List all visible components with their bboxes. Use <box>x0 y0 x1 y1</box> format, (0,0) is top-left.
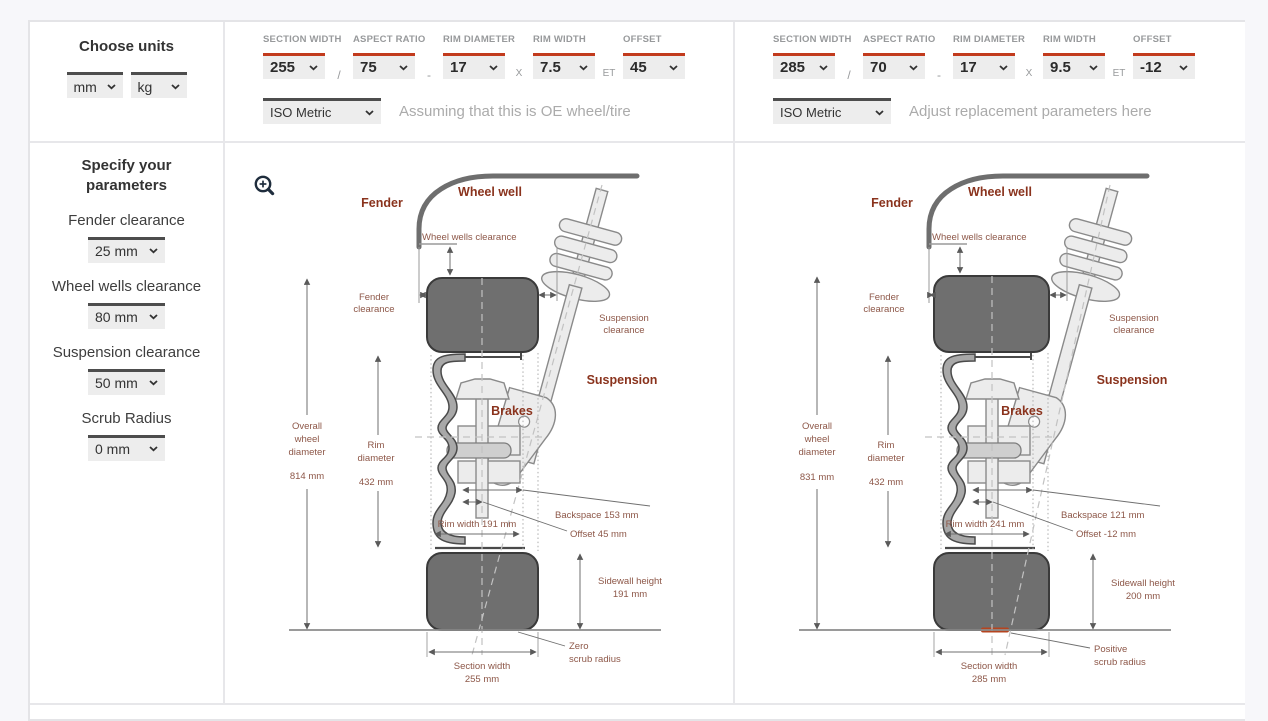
field-label: ASPECT RATIO <box>353 34 415 45</box>
scrub-radius-leader <box>518 632 565 646</box>
rim-top-bead <box>975 352 1031 360</box>
scrub-radius-text: scrub radius <box>569 654 621 665</box>
brake-caliper-lower <box>458 461 520 483</box>
scrub-radius-leader <box>1011 633 1090 648</box>
section-width-text: Section width <box>961 661 1018 672</box>
select-scrub-radius[interactable]: 0 mm <box>88 435 165 461</box>
offset-text: Offset -12 mm <box>1076 529 1136 540</box>
select-weight-unit[interactable]: kg <box>131 72 187 98</box>
sidewall-height-text: Sidewall height <box>598 576 662 587</box>
parameters-heading-line1: Specify your <box>30 156 223 176</box>
standard-value: ISO Metric <box>270 105 331 120</box>
select-rim-width-new[interactable]: 9.5 <box>1043 53 1105 79</box>
rim-diameter-text: Rim <box>368 440 385 451</box>
field-label: SECTION WIDTH <box>263 34 325 45</box>
chevron-down-icon <box>309 65 318 71</box>
field-separator: X <box>505 34 533 82</box>
param-value: 50 mm <box>95 375 138 391</box>
wheel-wells-clearance-text: Wheel wells clearance <box>422 232 517 243</box>
field-label: RIM WIDTH <box>533 34 595 45</box>
field-value: 17 <box>960 59 977 76</box>
param-value: 25 mm <box>95 243 138 259</box>
weight-unit-value: kg <box>138 79 153 95</box>
footer-row <box>30 705 1245 719</box>
select-rim-diameter-new[interactable]: 17 <box>953 53 1015 79</box>
field-label: RIM DIAMETER <box>953 34 1015 45</box>
rim-diameter-text: diameter <box>868 453 905 464</box>
suspension-label: Suspension <box>587 373 658 387</box>
field-separator: / <box>325 34 353 82</box>
field-value: 45 <box>630 59 647 76</box>
offset-text: Offset 45 mm <box>570 529 627 540</box>
select-suspension-clearance[interactable]: 50 mm <box>88 369 165 395</box>
field-separator: X <box>1015 34 1043 82</box>
length-unit-value: mm <box>74 79 97 95</box>
fender-label: Fender <box>361 196 403 210</box>
replacement-wheel-diagram: Fender Wheel well <box>735 143 1245 705</box>
field-label: SECTION WIDTH <box>773 34 835 45</box>
select-aspect-ratio-new[interactable]: 70 <box>863 53 925 79</box>
select-offset-new[interactable]: -12 <box>1133 53 1195 79</box>
param-value: 80 mm <box>95 309 138 325</box>
chevron-down-icon <box>819 65 828 71</box>
brake-caliper-lower <box>968 461 1030 483</box>
select-fender-clearance[interactable]: 25 mm <box>88 237 165 263</box>
backspace-text: Backspace 153 mm <box>555 510 639 521</box>
suspension-label: Suspension <box>1097 373 1168 387</box>
suspension-clearance-label: Suspension clearance <box>30 344 223 361</box>
field-value: 255 <box>270 59 295 76</box>
field-label: RIM DIAMETER <box>443 34 505 45</box>
chevron-down-icon <box>909 65 918 71</box>
section-width-text: Section width <box>454 661 511 672</box>
rim-width-text: Rim width 241 mm <box>946 519 1025 530</box>
field-value: 9.5 <box>1050 59 1071 76</box>
select-offset-oe[interactable]: 45 <box>623 53 685 79</box>
panel-replacement-fields: SECTION WIDTH 285 / ASPECT RATIO 70 - RI… <box>735 22 1245 143</box>
wheel-well-label: Wheel well <box>968 185 1032 199</box>
field-separator: ET <box>1105 34 1133 82</box>
field-label: OFFSET <box>623 34 685 45</box>
sidewall-height-value: 200 mm <box>1126 591 1160 602</box>
parameters-heading-line2: parameters <box>30 176 223 196</box>
select-standard-oe[interactable]: ISO Metric <box>263 98 381 124</box>
sidebar-units-section: Choose units mm kg <box>30 22 225 143</box>
field-value: 75 <box>360 59 377 76</box>
rim-diameter-text: diameter <box>358 453 395 464</box>
select-aspect-ratio-oe[interactable]: 75 <box>353 53 415 79</box>
select-section-width-oe[interactable]: 255 <box>263 53 325 79</box>
wheel-wells-clearance-label: Wheel wells clearance <box>30 278 223 295</box>
chevron-down-icon <box>999 65 1008 71</box>
chevron-down-icon <box>149 314 158 320</box>
backspace-leader <box>523 490 650 506</box>
rim-diameter-value: 432 mm <box>359 477 393 488</box>
chevron-down-icon <box>489 65 498 71</box>
select-standard-new[interactable]: ISO Metric <box>773 98 891 124</box>
suspension-clearance-text: Suspension <box>599 313 649 324</box>
chevron-down-icon <box>399 65 408 71</box>
fender-label: Fender <box>871 196 913 210</box>
wheel-well-label: Wheel well <box>458 185 522 199</box>
overall-diameter-text: wheel <box>294 434 320 445</box>
fender-clearance-text: clearance <box>353 304 394 315</box>
field-separator: / <box>835 34 863 82</box>
wheel-wells-clearance-text: Wheel wells clearance <box>932 232 1027 243</box>
overall-diameter-text: wheel <box>804 434 830 445</box>
standard-value: ISO Metric <box>780 105 841 120</box>
select-section-width-new[interactable]: 285 <box>773 53 835 79</box>
tire-calculator-card: Choose units mm kg SECTION WIDTH 255 <box>28 20 1245 721</box>
suspension-clearance-text: clearance <box>1113 325 1154 336</box>
rim-diameter-value: 432 mm <box>869 477 903 488</box>
oe-hint-text: Assuming that this is OE wheel/tire <box>399 103 631 120</box>
field-label: RIM WIDTH <box>1043 34 1105 45</box>
sidewall-height-text: Sidewall height <box>1111 578 1175 589</box>
select-wheel-wells-clearance[interactable]: 80 mm <box>88 303 165 329</box>
replacement-hint-text: Adjust replacement parameters here <box>909 103 1152 120</box>
chevron-down-icon <box>149 248 158 254</box>
fender-clearance-text: Fender <box>869 292 899 303</box>
overall-diameter-text: Overall <box>292 421 322 432</box>
field-value: -12 <box>1140 59 1162 76</box>
chevron-down-icon <box>107 84 116 90</box>
rim-width-text: Rim width 191 mm <box>438 519 517 530</box>
scrub-radius-text: Positive <box>1094 644 1127 655</box>
backspace-leader <box>1033 490 1160 506</box>
field-separator: - <box>415 34 443 82</box>
field-value: 285 <box>780 59 805 76</box>
field-separator: - <box>925 34 953 82</box>
select-rim-width-oe[interactable]: 7.5 <box>533 53 595 79</box>
field-label: ASPECT RATIO <box>863 34 925 45</box>
chevron-down-icon <box>149 446 158 452</box>
sidebar-parameters-section: Specify your parameters Fender clearance… <box>30 143 225 705</box>
section-width-value: 255 mm <box>465 674 499 685</box>
sidewall-height-value: 191 mm <box>613 589 647 600</box>
rim-top-bead <box>465 352 521 360</box>
section-width-value: 285 mm <box>972 674 1006 685</box>
wheel-diagram-svg: Fender Wheel well <box>225 143 735 703</box>
chevron-down-icon <box>365 110 374 116</box>
chevron-down-icon <box>171 84 180 90</box>
brakes-label: Brakes <box>491 404 533 418</box>
overall-diameter-text: Overall <box>802 421 832 432</box>
overall-diameter-text: diameter <box>799 447 836 458</box>
field-label: OFFSET <box>1133 34 1195 45</box>
fender-clearance-text: clearance <box>863 304 904 315</box>
scrub-radius-text: Zero <box>569 641 589 652</box>
scrub-radius-label: Scrub Radius <box>30 410 223 427</box>
parameters-heading: Specify your parameters <box>30 143 223 197</box>
chevron-down-icon <box>875 110 884 116</box>
overall-diameter-value: 814 mm <box>290 471 324 482</box>
chevron-down-icon <box>579 65 588 71</box>
field-separator: ET <box>595 34 623 82</box>
chevron-down-icon <box>669 65 678 71</box>
backspace-text: Backspace 121 mm <box>1061 510 1145 521</box>
chevron-down-icon <box>149 380 158 386</box>
oe-wheel-diagram: Fender Wheel well <box>225 143 735 705</box>
chevron-down-icon <box>1179 65 1188 71</box>
units-heading: Choose units <box>30 22 223 57</box>
suspension-clearance-text: clearance <box>603 325 644 336</box>
chevron-down-icon <box>1089 65 1098 71</box>
param-value: 0 mm <box>95 441 130 457</box>
overall-diameter-text: diameter <box>289 447 326 458</box>
panel-oe-fields: SECTION WIDTH 255 / ASPECT RATIO 75 - RI… <box>225 22 735 143</box>
wheel-diagram-svg: Fender Wheel well <box>735 143 1245 703</box>
brakes-label: Brakes <box>1001 404 1043 418</box>
select-rim-diameter-oe[interactable]: 17 <box>443 53 505 79</box>
rim-diameter-text: Rim <box>878 440 895 451</box>
select-length-unit[interactable]: mm <box>67 72 123 98</box>
fender-clearance-text: Fender <box>359 292 389 303</box>
field-value: 17 <box>450 59 467 76</box>
overall-diameter-value: 831 mm <box>800 472 834 483</box>
field-value: 7.5 <box>540 59 561 76</box>
fender-clearance-label: Fender clearance <box>30 212 223 229</box>
suspension-clearance-text: Suspension <box>1109 313 1159 324</box>
field-value: 70 <box>870 59 887 76</box>
zoom-icon[interactable] <box>256 177 273 194</box>
scrub-radius-text: scrub radius <box>1094 657 1146 668</box>
